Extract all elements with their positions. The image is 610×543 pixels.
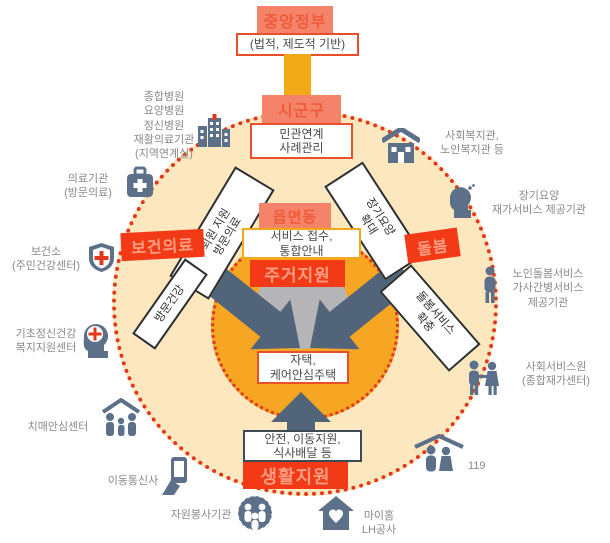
community-care-diagram: 퇴원 지원 방문의료 방문건강 장기요양 확대 돌봄서비스 확충 중앙정부 (법… bbox=[0, 0, 610, 543]
social-service-agency-label: 사회서비스원 (종합재가센터) bbox=[512, 360, 600, 389]
elderly-couple-icon bbox=[463, 360, 505, 395]
volunteer-org-label: 자원봉사기관 bbox=[166, 508, 236, 522]
safety-mobility-meals-box: 안전, 이동지원, 식사배달 등 bbox=[243, 430, 362, 462]
service-intake-box: 서비스 접수, 통합안내 bbox=[242, 228, 361, 259]
myhome-lh-label: 마이홈 LH공사 bbox=[356, 509, 402, 538]
volunteer-globe-icon bbox=[237, 494, 273, 532]
head-thinking-icon bbox=[446, 183, 476, 218]
shield-cross-icon bbox=[88, 242, 115, 273]
home-line: 자택, bbox=[290, 353, 315, 367]
medical-bag-icon bbox=[126, 166, 154, 199]
home-care-housing-box: 자택, 케어안심주택 bbox=[257, 351, 349, 384]
home-line: 케어안심주택 bbox=[270, 368, 336, 382]
gov-to-sigungu-connector bbox=[284, 54, 311, 96]
caregiver-person-icon bbox=[481, 266, 499, 303]
house-heart-icon bbox=[317, 494, 355, 531]
mental-health-center-label: 기초정신건강 복지지원센터 bbox=[8, 327, 84, 356]
family-under-roof-icon bbox=[101, 398, 141, 440]
elder-care-provider-label: 노인돌봄서비스 가사간병서비스 제공기관 bbox=[502, 267, 594, 310]
linkage-line: 민관연계 bbox=[279, 127, 323, 141]
welfare-center-label: 사회복지관, 노인복지관 등 bbox=[428, 129, 516, 158]
welfare-house-icon bbox=[382, 128, 420, 164]
head-brain-icon bbox=[78, 321, 112, 358]
longterm-care-provider-label: 장기요양 재가서비스 제공기관 bbox=[480, 189, 598, 218]
housing-support-node: 주거지원 bbox=[250, 260, 345, 287]
intake-line: 통합안내 bbox=[279, 244, 323, 258]
public-health-center-label: 보건소 (주민건강센터) bbox=[2, 245, 90, 274]
dementia-center-label: 치매안심센터 bbox=[20, 420, 96, 434]
safety-line: 식사배달 등 bbox=[273, 446, 332, 460]
elderly-couple-under-roof-icon bbox=[413, 433, 465, 475]
safety-line: 안전, 이동지원, bbox=[264, 432, 340, 446]
life-support-node: 생활지원 bbox=[243, 462, 348, 489]
telecom-label: 이동통신사 bbox=[103, 474, 163, 488]
legal-basis-box: (법적, 제도적 기반) bbox=[236, 33, 359, 56]
sigungu-node: 시군구 bbox=[262, 95, 341, 123]
health-care-node: 보건의료 bbox=[120, 229, 204, 261]
public-private-linkage-box: 민관연계 사례관리 bbox=[250, 123, 353, 159]
hand-phone-icon bbox=[160, 456, 193, 495]
eupmyeondong-node: 읍면동 bbox=[259, 203, 331, 229]
linkage-line: 사례관리 bbox=[279, 141, 323, 155]
central-government-node: 중앙정부 bbox=[257, 6, 333, 33]
hospital-buildings-icon bbox=[197, 113, 231, 148]
intake-line: 서비스 접수, bbox=[271, 229, 333, 243]
medical-institution-label: 의료기관 (방문의료) bbox=[52, 172, 124, 201]
rescue-119-label: 119 bbox=[468, 459, 498, 473]
